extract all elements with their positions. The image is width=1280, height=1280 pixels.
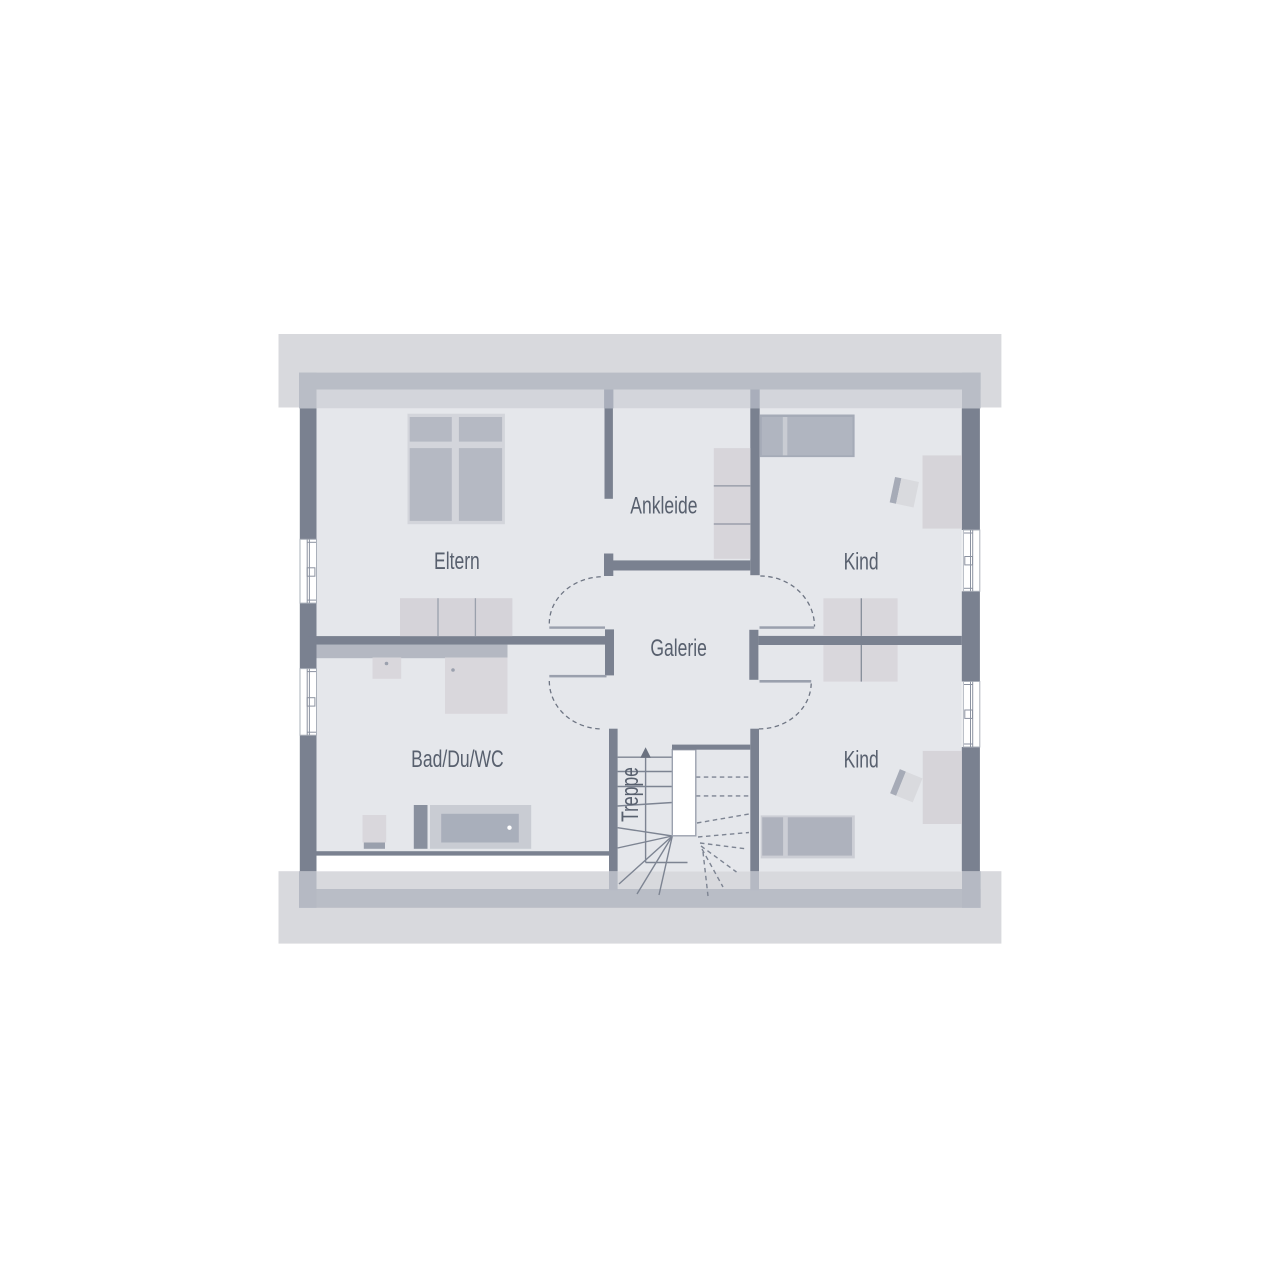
svg-text:Kind: Kind — [844, 549, 879, 575]
svg-text:Galerie: Galerie — [650, 636, 706, 662]
svg-text:Ankleide: Ankleide — [630, 493, 697, 519]
svg-text:Bad/Du/WC: Bad/Du/WC — [411, 746, 503, 772]
svg-text:Eltern: Eltern — [434, 548, 480, 574]
svg-text:Treppe: Treppe — [618, 767, 644, 822]
svg-text:Kind: Kind — [844, 747, 879, 773]
